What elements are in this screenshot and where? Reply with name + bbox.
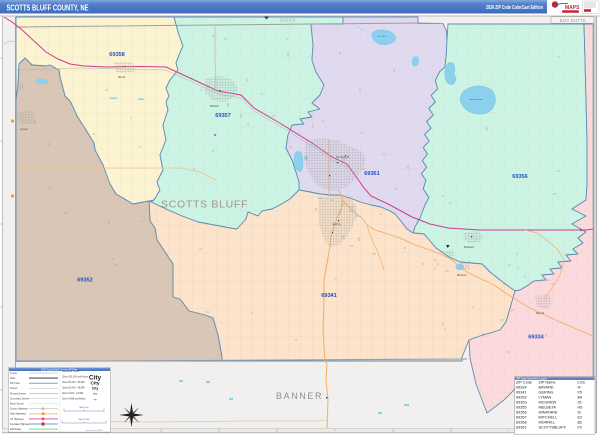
- svg-text:Minatare: Minatare: [464, 245, 475, 249]
- svg-text:SCOTTS BLUFF: SCOTTS BLUFF: [161, 199, 248, 211]
- svg-text:69361: 69361: [516, 425, 527, 429]
- svg-text:Miles (City): Miles (City): [80, 406, 89, 409]
- svg-text:2026 ZIP Code ColorCast Editio: 2026 ZIP Code ColorCast Edition: [486, 5, 543, 11]
- svg-text:69355: 69355: [516, 405, 527, 409]
- svg-text:Gering: Gering: [332, 222, 341, 226]
- svg-text:MAPS: MAPS: [565, 5, 580, 11]
- svg-text:State Highways: State Highways: [10, 413, 27, 416]
- svg-text:69341: 69341: [516, 390, 527, 394]
- svg-text:Cities and Towns: Cities and Towns: [62, 370, 80, 373]
- svg-text:County Highways: County Highways: [10, 408, 29, 411]
- svg-text:Mitchell: Mitchell: [210, 104, 219, 108]
- svg-text:69357: 69357: [516, 415, 527, 419]
- svg-text:Cities 100,000 and Above: Cities 100,000 and Above: [62, 375, 89, 378]
- svg-text:Copyright MarketMAPS: Copyright MarketMAPS: [85, 429, 104, 432]
- svg-text:69352: 69352: [516, 395, 527, 399]
- svg-text:G: G: [392, 429, 394, 433]
- svg-text:69356: 69356: [512, 174, 528, 180]
- svg-text:I4: I4: [578, 385, 581, 389]
- svg-text:Morrill: Morrill: [118, 75, 125, 79]
- svg-text:MITCHELL: MITCHELL: [539, 415, 558, 419]
- svg-text:Scottsbluff: Scottsbluff: [336, 155, 349, 159]
- svg-text:D: D: [218, 429, 220, 433]
- svg-text:69341: 69341: [321, 293, 337, 299]
- svg-text:City: City: [89, 375, 102, 382]
- svg-text:BOX BUTTE: BOX BUTTE: [560, 18, 586, 23]
- svg-text:City: City: [92, 387, 99, 391]
- svg-text:SCOTTSBLUFF: SCOTTSBLUFF: [539, 425, 567, 429]
- svg-text:MELBETA: MELBETA: [539, 405, 557, 409]
- svg-text:Streets: Streets: [10, 387, 18, 390]
- svg-text:Bayard: Bayard: [536, 311, 545, 315]
- svg-text:69361: 69361: [364, 171, 380, 177]
- svg-text:B2: B2: [578, 420, 583, 424]
- svg-text:C: C: [160, 429, 162, 433]
- svg-text:US Highways: US Highways: [10, 419, 25, 421]
- svg-text:Cities 50,000 - 99,999: Cities 50,000 - 99,999: [62, 381, 85, 384]
- svg-text:H5: H5: [578, 405, 583, 409]
- svg-text:ZIP Code: ZIP Code: [10, 383, 20, 385]
- svg-text:F2: F2: [578, 425, 582, 429]
- svg-text:city: city: [93, 392, 98, 396]
- svg-text:Minor Streets: Minor Streets: [10, 403, 25, 406]
- svg-text:Lake Minatare: Lake Minatare: [469, 98, 484, 101]
- svg-text:69357: 69357: [215, 113, 231, 119]
- svg-text:ZIP Name: ZIP Name: [539, 381, 556, 385]
- svg-text:ZIP Code: ZIP Code: [516, 381, 532, 385]
- svg-text:Cities 25,000 - 49,999: Cities 25,000 - 49,999: [62, 386, 85, 389]
- svg-text:LYMAN: LYMAN: [539, 395, 552, 399]
- svg-text:F5: F5: [578, 390, 582, 394]
- svg-text:GERING: GERING: [539, 390, 554, 394]
- svg-text:County: County: [10, 372, 18, 375]
- svg-text:McGrew: McGrew: [457, 273, 467, 277]
- svg-text:E2: E2: [578, 415, 583, 419]
- svg-text:BAYARD: BAYARD: [539, 385, 554, 389]
- svg-text:69334: 69334: [516, 385, 527, 389]
- svg-text:Lake Alice: Lake Alice: [377, 35, 388, 38]
- svg-text:MINATARE: MINATARE: [539, 410, 559, 414]
- svg-text:B4: B4: [578, 395, 583, 399]
- svg-text:69356: 69356: [516, 410, 527, 414]
- svg-text:H: H: [450, 429, 452, 433]
- svg-text:69358: 69358: [516, 420, 527, 424]
- svg-text:LOC: LOC: [578, 381, 586, 385]
- svg-text:69334: 69334: [528, 335, 544, 341]
- svg-text:Miles (ZCTA): Miles (ZCTA): [79, 418, 90, 421]
- svg-text:69353: 69353: [516, 400, 527, 404]
- svg-text:Cities 5,000 - 24,999: Cities 5,000 - 24,999: [62, 392, 84, 395]
- svg-text:Interstate Highways: Interstate Highways: [10, 423, 31, 426]
- svg-text:69358: 69358: [109, 52, 125, 58]
- svg-text:Lyman: Lyman: [20, 127, 28, 131]
- svg-text:Cities 4,999 and Below: Cities 4,999 and Below: [62, 397, 86, 400]
- svg-text:BANNER: BANNER: [276, 391, 323, 401]
- svg-text:Secondary Streets: Secondary Streets: [10, 397, 30, 400]
- svg-text:SIOUX: SIOUX: [280, 18, 296, 23]
- svg-text:Rail Roads: Rail Roads: [10, 429, 22, 431]
- svg-text:MORRILL: MORRILL: [539, 420, 556, 424]
- svg-text:J5: J5: [578, 400, 582, 404]
- svg-text:E: E: [276, 429, 278, 433]
- svg-text:I3: I3: [578, 410, 581, 414]
- svg-text:69352: 69352: [77, 278, 93, 284]
- svg-text:Primary Streets: Primary Streets: [10, 392, 27, 395]
- svg-text:MCGREW: MCGREW: [539, 400, 557, 404]
- svg-text:State: State: [10, 377, 16, 380]
- svg-text:SCOTTS BLUFF COUNTY, NE: SCOTTS BLUFF COUNTY, NE: [7, 2, 89, 12]
